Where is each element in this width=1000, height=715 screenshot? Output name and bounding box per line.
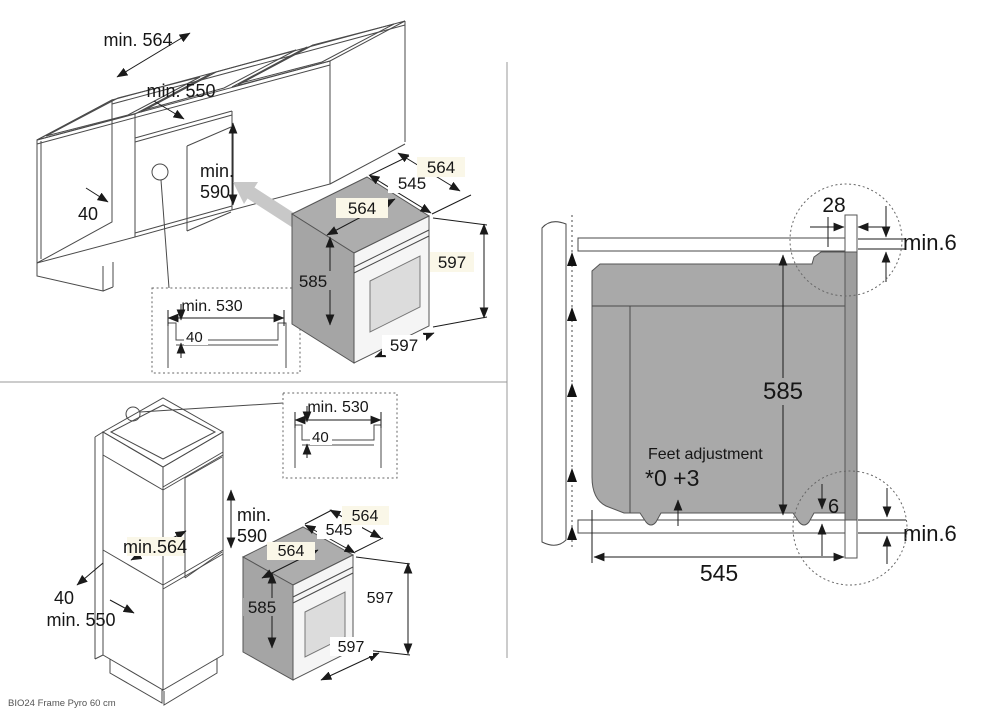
feet-adjustment-range: *0 +3 (645, 465, 699, 491)
dim-base-niche-depth: min. 550 (146, 81, 215, 101)
dim-base-front-rail: 40 (78, 204, 98, 224)
dim-recess-width: min. 530 (307, 399, 368, 416)
oven-isometric-top: 564 545 564 585 597 597 (292, 153, 487, 363)
dim-oven-width-front: 597 (390, 336, 418, 355)
detail-callout-circle (126, 407, 140, 421)
base-cabinet-diagram: min. 530 40 min. 564 min. 550 min. 590 4… (37, 21, 487, 373)
dim-recess-depth: 40 (186, 329, 203, 346)
front-frame-top-tab (845, 215, 857, 252)
product-label: BIO24 Frame Pyro 60 cm (8, 698, 116, 709)
dim-base-niche-height-value: 590 (200, 182, 230, 202)
dim-tall-front-rail: 40 (54, 588, 74, 608)
dim-tall-niche-width: min.564 (123, 537, 187, 557)
installation-drawing-page: min. 530 40 min. 564 min. 550 min. 590 4… (0, 0, 1000, 715)
dim-side-oven-depth: 545 (700, 560, 738, 586)
dim-oven-depth-total: 564 (427, 158, 455, 177)
dim-recess-depth: 40 (312, 429, 329, 446)
detail-leader-line (161, 180, 169, 288)
dim-oven-height-front: 597 (367, 590, 394, 607)
dim-oven-depth-total: 564 (352, 508, 379, 525)
recess-profile (295, 425, 381, 468)
side-section-diagram: 585 28 min.6 6 min.6 545 Feet adjustment… (542, 184, 957, 586)
dim-oven-height-body: 585 (248, 598, 276, 617)
top-shelf (578, 238, 845, 251)
dim-recess-width: min. 530 (181, 298, 242, 315)
dim-tall-niche-height-min: min. (237, 505, 271, 525)
installation-drawing: min. 530 40 min. 564 min. 550 min. 590 4… (0, 0, 1000, 715)
dim-bottom-clearance: min.6 (903, 521, 957, 546)
tall-cabinet-diagram: min. 530 40 min. 590 min.564 40 min. 550 (46, 393, 410, 705)
dim-oven-width-top: 564 (348, 199, 376, 218)
dim-tall-niche-height-value: 590 (237, 526, 267, 546)
dim-oven-depth-body: 545 (398, 174, 426, 193)
front-frame-bottom-tab (845, 520, 857, 558)
feet-adjustment-label: Feet adjustment (648, 446, 763, 463)
dim-oven-depth-body: 545 (326, 522, 353, 539)
dim-bottom-gap: 6 (828, 496, 839, 518)
dim-tall-niche-depth: min. 550 (46, 610, 115, 630)
dim-base-niche-height-min: min. (200, 161, 234, 181)
tall-niche-dimensions: min. 590 min.564 40 min. 550 (46, 490, 271, 630)
dim-side-oven-height: 585 (763, 378, 803, 405)
dim-oven-height-body: 585 (299, 272, 327, 291)
detail-leader-line (140, 403, 283, 412)
shelf-recess-detail-tall: min. 530 40 (283, 393, 397, 478)
dim-oven-height-front: 597 (438, 253, 466, 272)
dim-oven-width-front: 597 (338, 639, 365, 656)
rear-wall (542, 222, 566, 545)
oven-isometric-bottom: 564 545 564 585 597 597 (243, 506, 410, 680)
shelf-recess-detail: min. 530 40 (152, 288, 300, 373)
dim-top-clearance: min.6 (903, 230, 957, 255)
dim-base-niche-width: min. 564 (103, 30, 172, 50)
detail-callout-circle (152, 164, 168, 180)
dim-oven-width-top: 564 (278, 543, 305, 560)
front-frame (845, 252, 857, 520)
dim-frame-overlap: 28 (822, 194, 845, 217)
